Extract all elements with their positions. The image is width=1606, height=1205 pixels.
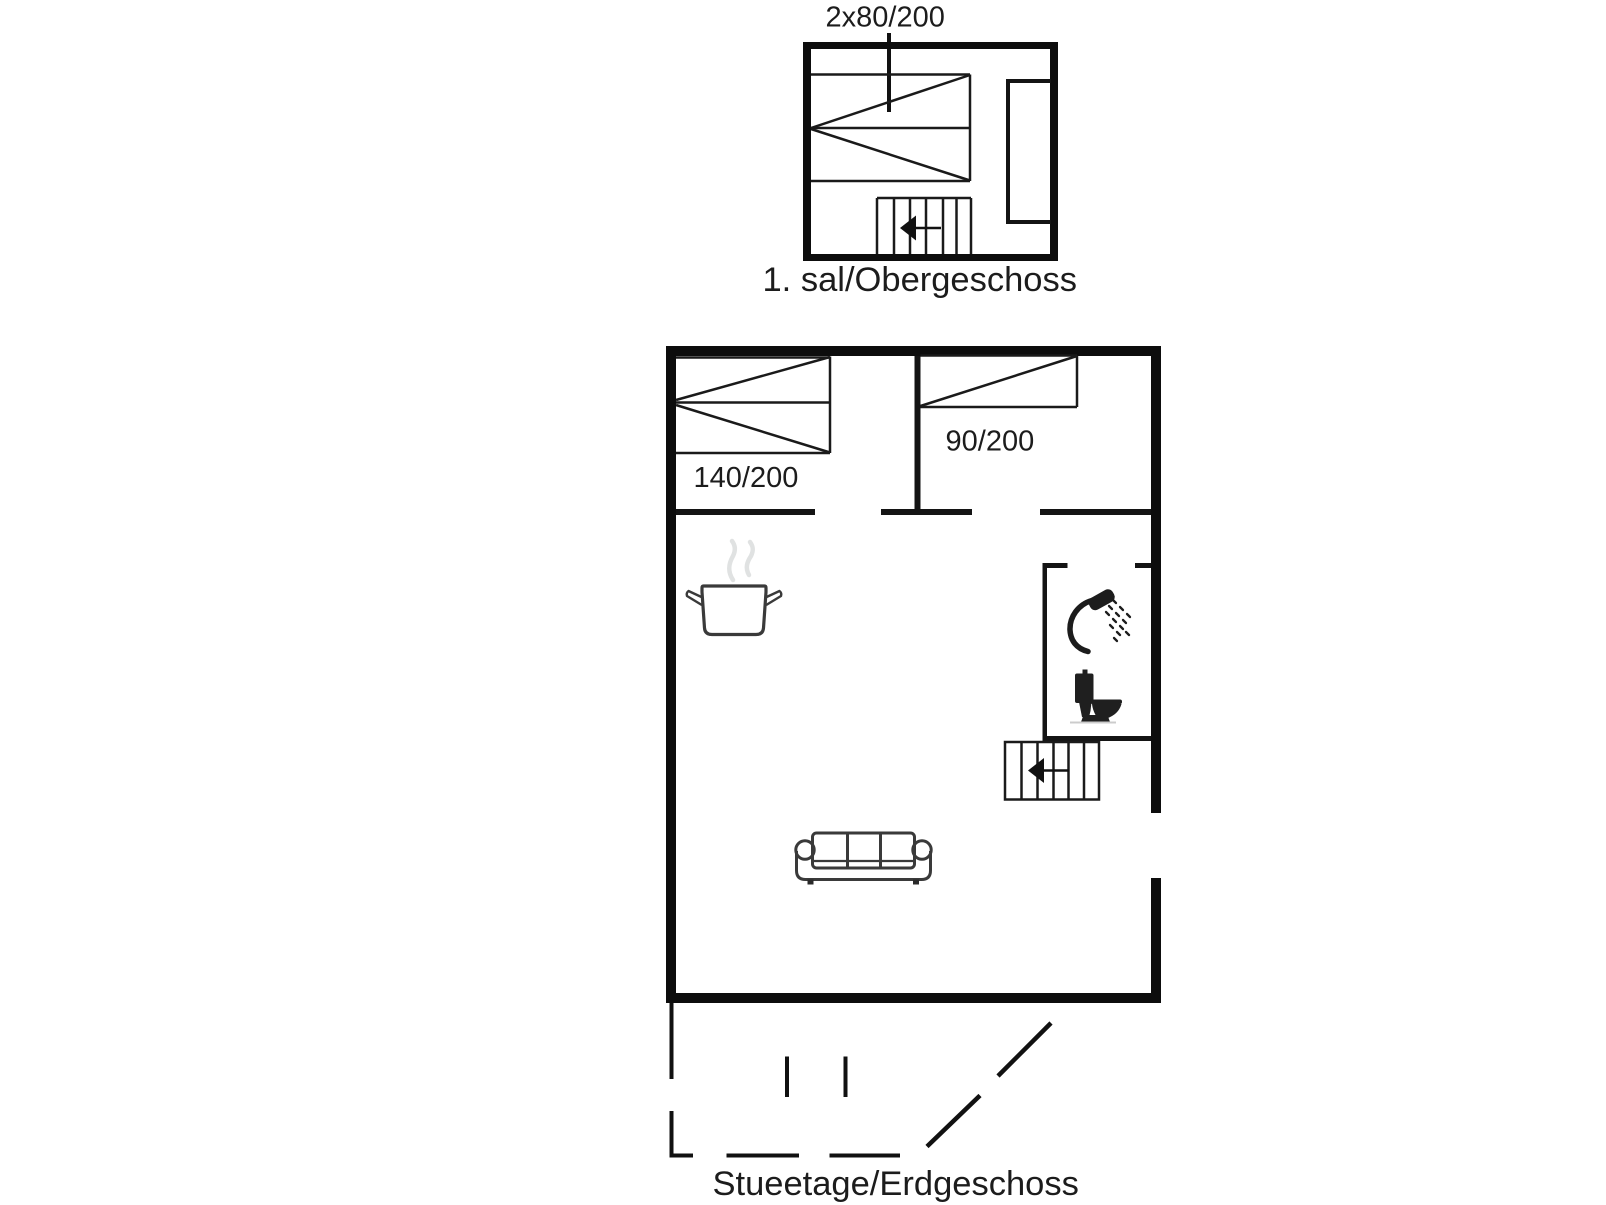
svg-text:1. sal/Obergeschoss: 1. sal/Obergeschoss — [763, 261, 1078, 299]
svg-text:140/200: 140/200 — [694, 462, 799, 494]
svg-text:2x80/200: 2x80/200 — [826, 2, 945, 34]
svg-text:90/200: 90/200 — [946, 426, 1035, 458]
svg-text:Stueetage/Erdgeschoss: Stueetage/Erdgeschoss — [713, 1165, 1079, 1203]
